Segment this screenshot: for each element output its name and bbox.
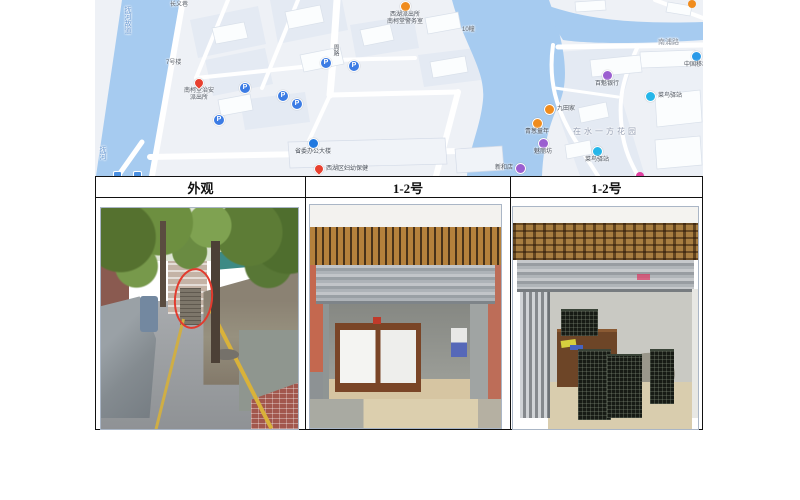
road-label-nanpu: 南浦路 xyxy=(658,39,679,46)
wood-lattice-band xyxy=(310,227,501,265)
photo-alley-exterior xyxy=(100,207,299,430)
wood-lattice-band xyxy=(513,223,698,261)
parking-icon: P xyxy=(291,98,303,110)
folding-door xyxy=(520,289,550,418)
poi-bank: 百魁银行 xyxy=(595,70,619,88)
ceiling xyxy=(310,205,501,227)
poi-beauty-store: 魅丽坊 xyxy=(534,138,552,156)
black-crate xyxy=(578,349,611,420)
small-poster xyxy=(451,328,466,357)
poi-cainiao-2: 菜鸟驿站 xyxy=(585,146,609,164)
document-page: 抚河故道 抚河 南浦路 10幢 7号楼 长义巷 周路 在水一方花园 西湖派出所 … xyxy=(0,0,800,500)
right-wall-edge xyxy=(692,289,698,418)
parking-icon: P xyxy=(213,114,225,126)
white-cabinet xyxy=(335,323,421,392)
poi-dot-icon xyxy=(688,0,696,8)
delivery-icon xyxy=(591,146,602,157)
parking-icon: P xyxy=(320,57,332,69)
foreground-ground xyxy=(310,399,501,428)
beauty-icon xyxy=(537,138,548,149)
poi-police-workstation: 西湖派出所 南柯堂警务室 xyxy=(387,1,423,26)
location-map: 抚河故道 抚河 南浦路 10幢 7号楼 长义巷 周路 在水一方花园 西湖派出所 … xyxy=(95,0,703,176)
poi-restaurant: 九田家 xyxy=(544,104,575,115)
river-label-small: 抚河 xyxy=(99,146,106,160)
police-badge-icon xyxy=(399,1,410,12)
parking-icon: P xyxy=(277,90,289,102)
delivery-icon xyxy=(645,91,656,102)
vertical-road-label: 周路 xyxy=(331,44,338,56)
food-icon xyxy=(544,104,555,115)
building-icon xyxy=(307,138,318,149)
river-label: 抚河故道 xyxy=(124,6,131,34)
pillar xyxy=(470,301,487,401)
poi-kids-store: 青葱童年 xyxy=(525,118,549,136)
roller-shutter xyxy=(316,265,496,304)
parking-icon: P xyxy=(239,82,251,94)
wall-skirting xyxy=(310,372,323,399)
location-pin-icon xyxy=(312,162,326,176)
poi-police-station: 南柯堂治安 派出所 xyxy=(184,78,214,102)
black-crate xyxy=(650,349,674,404)
photo-shop-unit-2 xyxy=(512,206,699,430)
poi-gov-office: 省委办公大楼 xyxy=(295,138,331,156)
shop-icon xyxy=(515,163,526,174)
black-crate-on-desk xyxy=(561,309,598,335)
header-exterior: 外观 xyxy=(96,177,306,198)
black-crate xyxy=(607,354,642,418)
area-label: 在水一方花园 xyxy=(573,128,639,135)
poi-china-mobile: 中国移动 xyxy=(684,51,703,69)
header-unit-2: 1-2号 xyxy=(511,177,702,198)
header-unit-1: 1-2号 xyxy=(306,177,511,198)
poi-store-partial: 新和店 xyxy=(495,163,526,174)
red-graffiti xyxy=(637,274,650,281)
red-box xyxy=(373,317,381,325)
shop-icon xyxy=(531,118,542,129)
building-label-7: 7号楼 xyxy=(166,60,181,67)
ceiling xyxy=(513,207,698,223)
poi-health-center: 西湖区妇幼保健 xyxy=(314,164,368,174)
poi-cainiao-1: 菜鸟驿站 xyxy=(645,91,682,102)
tree-trunk xyxy=(160,221,166,307)
photo-shop-unit-1 xyxy=(309,204,502,429)
roller-shutter xyxy=(517,260,695,292)
bank-icon xyxy=(601,70,612,81)
building-label-10: 10幢 xyxy=(462,27,475,34)
alley-label: 长义巷 xyxy=(170,2,188,9)
mobile-icon xyxy=(690,51,701,62)
parking-icon: P xyxy=(348,60,360,72)
